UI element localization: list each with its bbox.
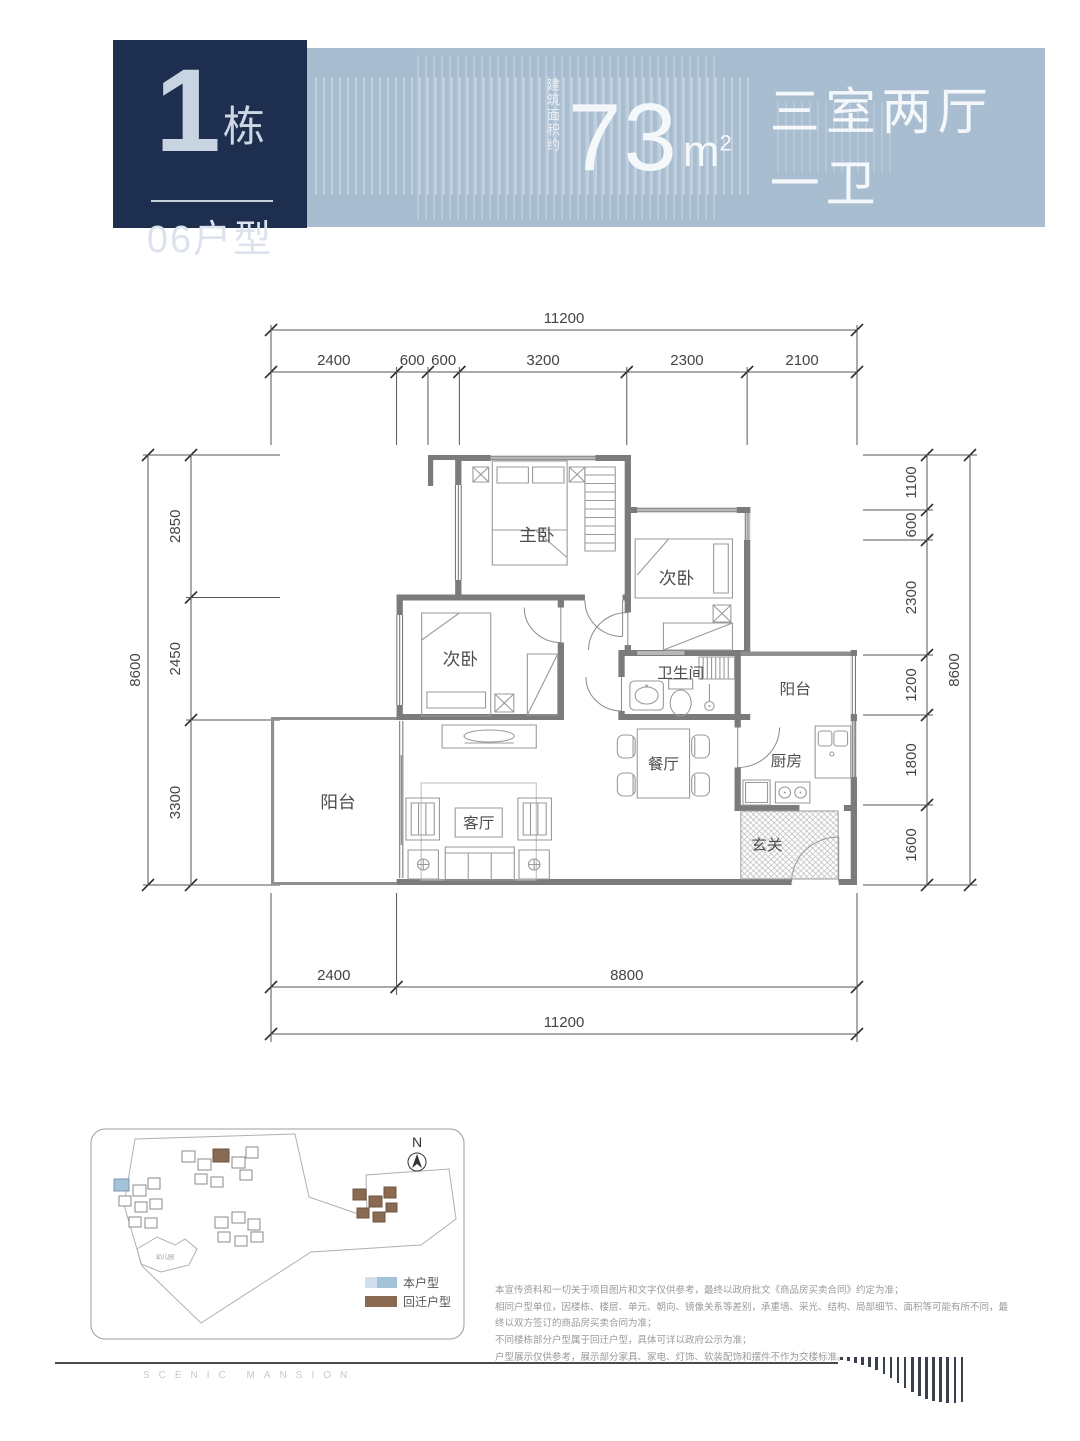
area-value: 73 — [568, 90, 679, 186]
svg-text:2300: 2300 — [903, 581, 920, 614]
svg-text:2300: 2300 — [670, 352, 703, 369]
kindergarten-label: 幼儿园 — [156, 1253, 174, 1261]
site-building-this — [114, 1179, 129, 1191]
unit-type-label: 06户型 — [113, 208, 307, 263]
svg-text:11200: 11200 — [544, 1014, 585, 1031]
footer-divider — [55, 1362, 838, 1364]
area-prefix-label: 建筑面积约 — [543, 78, 562, 198]
svg-text:2100: 2100 — [785, 352, 818, 369]
building-number: 1 — [155, 45, 223, 177]
svg-text:1200: 1200 — [903, 668, 920, 701]
room-label-bedroom-right: 次卧 — [659, 568, 695, 588]
svg-text:2850: 2850 — [167, 510, 184, 543]
north-label: N — [412, 1134, 422, 1150]
svg-text:8600: 8600 — [130, 653, 144, 686]
svg-text:1600: 1600 — [903, 828, 920, 861]
room-label-balcony-right: 阳台 — [780, 680, 811, 698]
room-label-foyer: 玄关 — [751, 836, 782, 854]
svg-text:3300: 3300 — [167, 786, 184, 819]
room-label-bathroom: 卫生间 — [657, 664, 704, 682]
legend-relocation-unit: 回迁户型 — [403, 1294, 451, 1309]
site-plan: 幼儿园 N 本户型 回迁户型 — [85, 1125, 470, 1345]
svg-text:1800: 1800 — [903, 743, 920, 776]
legend-this-unit: 本户型 — [403, 1275, 439, 1290]
floorplan-sheet: 建筑面积约 73 m2 三室两厅一卫 1栋 06户型 1120024006006… — [0, 0, 1080, 1441]
divider — [151, 200, 273, 202]
svg-text:2400: 2400 — [317, 352, 350, 369]
layout-description: 三室两厅一卫 — [770, 72, 1045, 216]
svg-text:2400: 2400 — [317, 967, 350, 984]
svg-text:1100: 1100 — [903, 466, 920, 498]
disclaimer-line: 不同楼栋部分户型属于回迁户型，具体可详以政府公示为准； — [495, 1333, 1015, 1350]
footer-bars-decor — [840, 1357, 963, 1403]
room-label-master: 主卧 — [519, 525, 555, 545]
svg-text:2450: 2450 — [167, 642, 184, 675]
disclaimer-line: 本宣传资料和一切关于项目图片和文字仅供参考，最终以政府批文《商品房买卖合同》约定… — [495, 1283, 1015, 1300]
svg-text:600: 600 — [903, 512, 920, 537]
room-label-kitchen: 厨房 — [771, 752, 802, 770]
svg-text:3200: 3200 — [526, 352, 559, 369]
disclaimer-text: 本宣传资料和一切关于项目图片和文字仅供参考，最终以政府批文《商品房买卖合同》约定… — [495, 1283, 1015, 1366]
svg-text:8600: 8600 — [946, 653, 963, 686]
building-suffix: 栋 — [223, 103, 265, 150]
disclaimer-line: 相同户型单位，因楼栋、楼层、单元、朝向、镜像关系等差别，承重墙、采光、结构、局部… — [495, 1300, 1015, 1333]
area-info: 建筑面积约 73 m2 三室两厅一卫 — [543, 48, 1045, 227]
svg-text:11200: 11200 — [544, 310, 585, 327]
area-unit: m2 — [683, 127, 732, 177]
room-label-bedroom-left: 次卧 — [443, 649, 479, 669]
room-label-living: 客厅 — [463, 814, 494, 832]
plan-drawing: 主卧 次卧 次卧 卫生间 阳台 餐厅 厨房 玄关 客厅 阳台 — [271, 455, 857, 885]
dimension-lines: 1120024006006003200230021002400880011200… — [130, 310, 977, 1042]
svg-text:8800: 8800 — [610, 967, 643, 984]
svg-text:600: 600 — [431, 352, 456, 369]
building-unit-box: 1栋 06户型 — [113, 40, 307, 228]
header-banner: 建筑面积约 73 m2 三室两厅一卫 — [307, 48, 1045, 227]
floor-plan: 1120024006006003200230021002400880011200… — [130, 295, 990, 1050]
room-label-balcony-left: 阳台 — [320, 792, 356, 812]
room-label-dining: 餐厅 — [648, 755, 679, 773]
brand-wordmark: SCENIC MANSION — [143, 1370, 356, 1381]
svg-text:600: 600 — [400, 352, 425, 369]
